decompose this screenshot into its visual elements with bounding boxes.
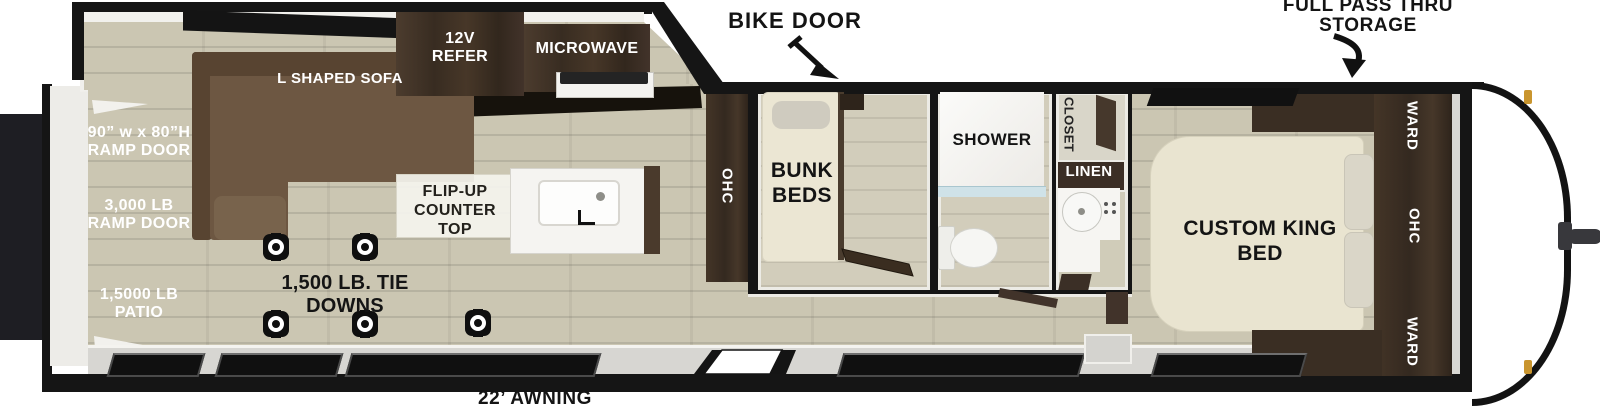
bedroom-ohc-label: OHC [1402, 202, 1426, 250]
sofa-label: L SHAPED SOFA [210, 70, 470, 87]
rv-floorplan: 90” w x 80”H RAMP DOOR 3,000 LB RAMP DOO… [0, 0, 1600, 415]
faucet-dots-icon [1104, 202, 1108, 206]
window-icon [837, 353, 1086, 377]
sofa-chaise-back [192, 52, 212, 240]
drain-icon [596, 192, 605, 201]
ramp-door-size-label: 90” w x 80”H RAMP DOOR [84, 124, 194, 166]
island-edge [644, 166, 660, 254]
patio-capacity-label: 1,5000 LB PATIO [84, 286, 194, 328]
slideout-left-wall [72, 2, 84, 80]
ward-bottom-label: WARD [1400, 310, 1424, 374]
microwave-label: MICROWAVE [524, 40, 650, 58]
hall-wall-lining [748, 294, 1132, 297]
bath-vanity-lower [1058, 238, 1100, 272]
window-icon [215, 353, 344, 377]
bunk-step-shelf [840, 94, 864, 110]
refrigerator-label: 12V REFER [396, 30, 524, 66]
drain-icon [1078, 208, 1085, 215]
hall-cabinet-door [1106, 292, 1128, 324]
shower-label: SHOWER [936, 130, 1048, 150]
ramp-door-capacity-label: 3,000 LB RAMP DOOR [84, 197, 194, 239]
bunk-pillow [772, 101, 830, 129]
window-icon [107, 353, 206, 377]
tie-down-icon [352, 234, 378, 260]
pass-thru-arrow [1334, 36, 1366, 78]
tie-down-icon [263, 234, 289, 260]
king-bed-label: CUSTOM KING BED [1170, 216, 1350, 266]
ohc-label: OHC [706, 90, 748, 282]
front-cap [1472, 82, 1571, 406]
window-icon [345, 353, 602, 377]
faucet-icon [578, 210, 595, 225]
closet-label: CLOSET [1058, 94, 1080, 156]
closet-shelf [1096, 95, 1116, 151]
awning-label: 22’ AWNING [440, 388, 630, 410]
pass-thru-storage-label: FULL PASS THRU STORAGE [1268, 0, 1468, 36]
bike-door-label: BIKE DOOR [690, 8, 900, 34]
bike-door-arrow [789, 37, 839, 79]
bedroom-window-icon [1151, 353, 1308, 377]
bedroom-window-icon [1147, 88, 1300, 106]
marker-light-icon [1524, 360, 1532, 374]
bunk-beds-label: BUNK BEDS [756, 158, 848, 208]
toilet-icon [950, 228, 998, 268]
shower-glass [938, 186, 1046, 197]
cooktop-icon [560, 72, 648, 84]
tie-downs-label: 1,500 LB. TIE DOWNS [240, 272, 450, 318]
ward-top-label: WARD [1400, 96, 1424, 156]
flip-up-counter-label: FLIP-UP COUNTER TOP [396, 182, 514, 239]
marker-light-icon [1524, 90, 1532, 104]
tie-down-icon [465, 310, 491, 336]
vanity-cabinet-door [1058, 274, 1091, 290]
linen-label: LINEN [1056, 163, 1122, 180]
entry-step [1084, 334, 1132, 364]
